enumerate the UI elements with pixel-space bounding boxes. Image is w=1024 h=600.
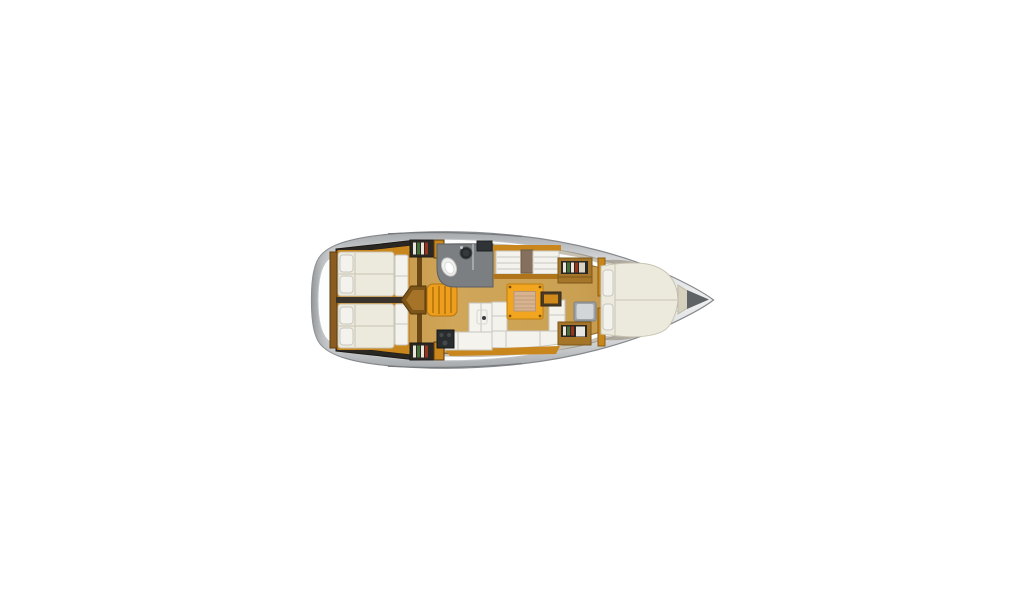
sink-faucet <box>460 246 463 249</box>
table-peg <box>509 286 512 289</box>
book-spine <box>571 327 574 336</box>
forward-shelf-starboard <box>558 322 591 345</box>
shelf-door-white <box>576 327 585 337</box>
aft-stbd-pillow-1 <box>340 307 353 324</box>
stove-burner <box>443 341 448 346</box>
book-spine <box>563 263 566 273</box>
vanity-seat <box>574 302 596 321</box>
book-spine <box>567 263 570 273</box>
stove-burner <box>440 333 444 337</box>
book-spine <box>567 327 570 336</box>
head <box>437 241 493 287</box>
book-spine <box>417 346 420 358</box>
v-berth-pillow-2 <box>603 304 613 330</box>
aft-cabin-starboard <box>336 302 416 360</box>
book-spine <box>579 263 585 273</box>
floor-plan-canvas <box>0 0 1024 600</box>
galley-sink-drain <box>482 316 486 320</box>
sink-drain <box>463 250 470 257</box>
table-peg <box>539 286 542 289</box>
table-peg <box>539 315 542 318</box>
v-berth-pillow-1 <box>603 270 613 296</box>
saloon-seat-divider <box>521 250 533 273</box>
head-counter-dark <box>477 241 492 251</box>
book-spine <box>413 243 416 255</box>
table-peg <box>509 315 512 318</box>
aft-cabin-port <box>336 240 416 298</box>
aft-port-pillow-1 <box>340 255 353 272</box>
book-spine <box>425 346 428 358</box>
book-spine <box>421 243 424 255</box>
saloon-seat-front-trim <box>493 274 561 279</box>
companionway <box>401 284 457 316</box>
book-spine <box>571 263 574 273</box>
book-spine <box>421 346 424 358</box>
sideboard-top <box>544 295 558 304</box>
forward-shelf-port <box>558 258 592 283</box>
companionway-steps <box>427 284 457 316</box>
stove-burner <box>447 333 451 337</box>
book-spine <box>425 243 428 255</box>
aft-port-pillow-2 <box>340 276 353 293</box>
yacht-floor-plan-image <box>0 0 1024 600</box>
aft-stbd-pillow-2 <box>340 328 353 345</box>
stern-bulkhead-trim <box>330 252 337 348</box>
seat-cushion <box>577 304 594 319</box>
book-spine <box>413 346 416 358</box>
forward-cabin <box>601 263 678 337</box>
book-spine <box>575 263 578 273</box>
book-spine <box>417 243 420 255</box>
book-spine <box>563 327 566 336</box>
